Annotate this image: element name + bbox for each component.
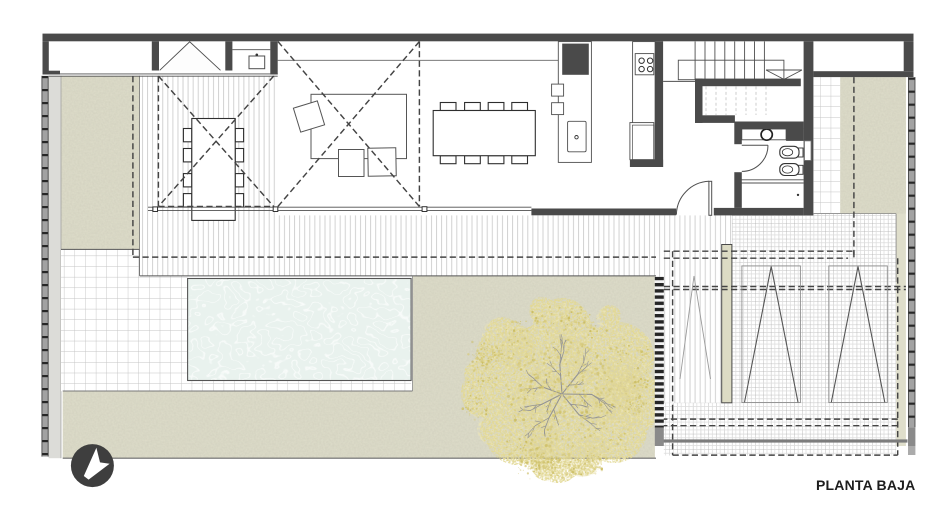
- svg-text:PLANTA BAJA: PLANTA BAJA: [816, 477, 915, 493]
